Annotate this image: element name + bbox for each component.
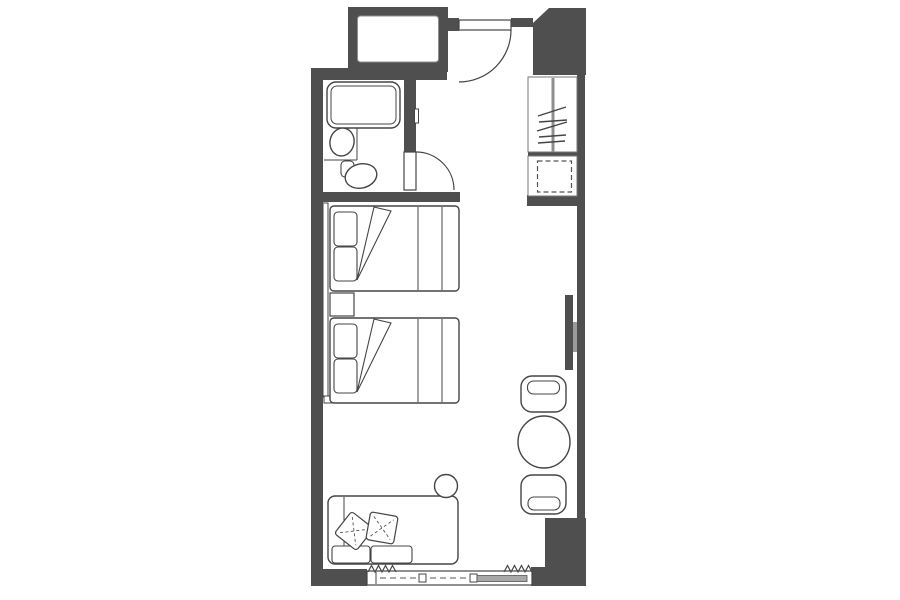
bathroom-south-wall	[311, 192, 460, 202]
sleeping-area	[323, 203, 459, 403]
bottom-right-wall	[531, 518, 586, 586]
round-table	[518, 416, 570, 468]
bathroom-door-leaf	[404, 152, 416, 190]
wardrobe	[528, 77, 577, 196]
seat-cushion	[332, 546, 370, 563]
duct-shaft-interior	[358, 16, 439, 62]
twin-bed-2	[330, 318, 459, 403]
bathtub	[327, 82, 400, 128]
twin-bed-1	[330, 206, 459, 291]
glass-panel	[477, 576, 527, 582]
left-wall	[311, 68, 323, 586]
wall-switch-panel	[415, 109, 419, 123]
tv-screen	[565, 295, 573, 370]
chair-top	[521, 376, 566, 412]
nightstand	[330, 293, 354, 316]
entry-door-swing-arc	[459, 30, 511, 82]
headboard-panel	[323, 203, 328, 397]
window-handle	[419, 574, 426, 582]
entry-jamb-left	[448, 18, 459, 31]
entry-door	[459, 20, 511, 82]
seat-cushion	[371, 546, 412, 563]
floor-plan-drawing	[0, 0, 900, 600]
washbasin	[327, 126, 356, 158]
entry-jamb-right	[511, 18, 533, 27]
dining-set	[518, 376, 570, 514]
window-assembly	[367, 566, 532, 586]
bathroom-door-swing-arc	[416, 152, 454, 190]
bottom-left-wall	[311, 569, 367, 586]
top-wall	[311, 68, 447, 80]
pillow	[334, 359, 357, 393]
chair-backrest	[528, 497, 560, 510]
side-stool	[435, 475, 458, 498]
throw-pillow-2	[366, 512, 398, 544]
right-wall	[577, 75, 585, 518]
bathroom	[324, 82, 454, 192]
luggage-rack	[528, 156, 577, 196]
pillow	[334, 324, 357, 358]
chair-bottom	[521, 475, 566, 514]
entry-corner-wall	[533, 8, 586, 75]
pillow	[334, 212, 357, 246]
pillow	[334, 247, 357, 281]
sofa	[328, 475, 458, 565]
wall-tv	[565, 295, 577, 370]
entry-door-leaf	[459, 20, 511, 30]
closet-end-wall	[527, 195, 577, 206]
window-handle	[470, 574, 477, 582]
chair-backrest	[528, 381, 560, 394]
floor-plan	[0, 0, 900, 600]
